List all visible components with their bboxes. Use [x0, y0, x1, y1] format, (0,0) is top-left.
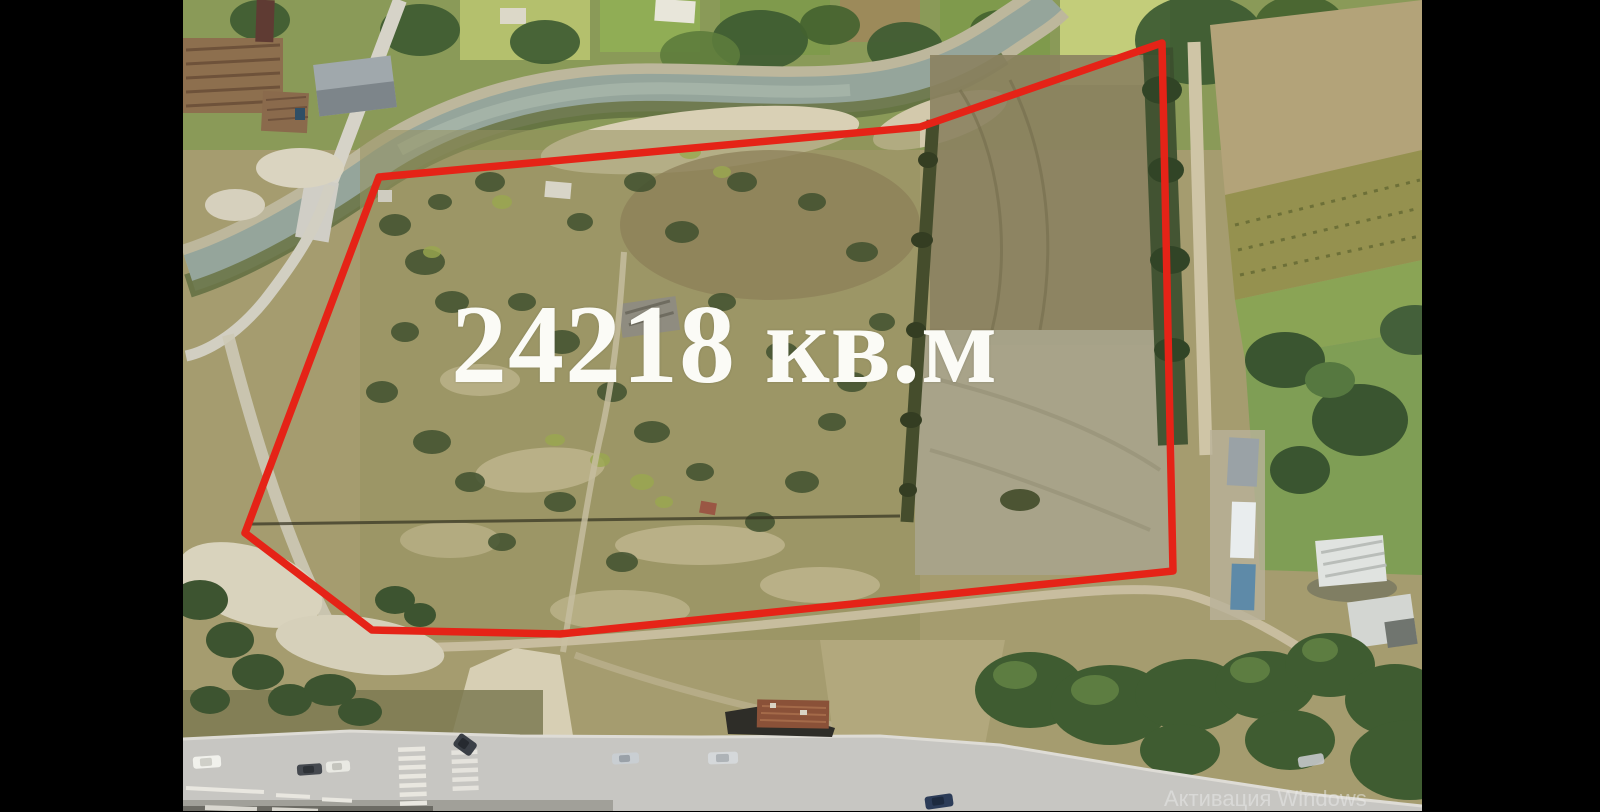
letterbox-left-bar [0, 0, 183, 811]
windows-activation-watermark: Активация Windows [1164, 786, 1367, 812]
video-frame: 24218 кв.м Активация Windows [0, 0, 1600, 811]
letterbox-right-bar [1422, 0, 1600, 811]
area-label: 24218 кв.м [451, 289, 998, 401]
